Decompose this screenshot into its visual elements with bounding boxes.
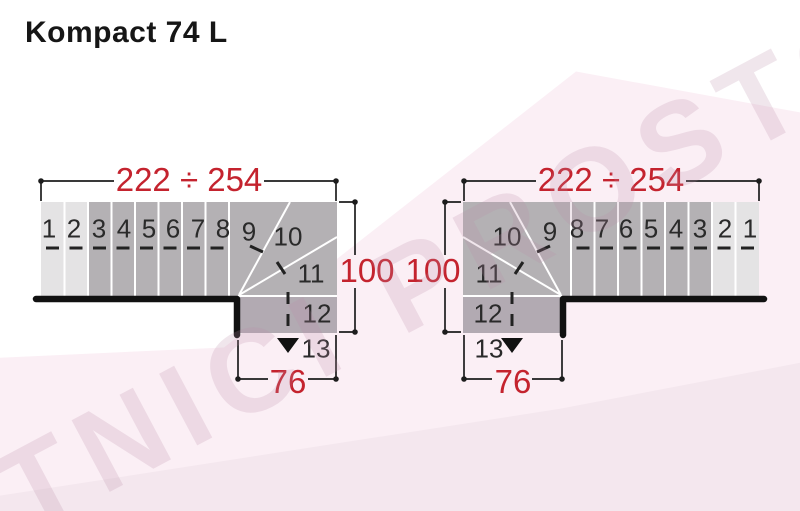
left-step-number: 13: [302, 334, 331, 365]
right-step-number: 9: [543, 217, 557, 248]
left-step-number: 7: [191, 214, 205, 245]
right-turn-dimension-label: 76: [495, 363, 532, 401]
left-step-number: 2: [67, 214, 81, 245]
right-step-number: 4: [669, 214, 683, 245]
right-step-number: 5: [644, 214, 658, 245]
left-step-number: 8: [216, 214, 230, 245]
page-title: Kompact 74 L: [25, 16, 228, 50]
right-step-number: 7: [595, 214, 609, 245]
right-height-dimension-label: 100: [405, 252, 460, 290]
left-step-number: 1: [42, 214, 56, 245]
right-step-number: 8: [570, 214, 584, 245]
left-step-number: 6: [166, 214, 180, 245]
left-step-number: 4: [117, 214, 131, 245]
left-step-number: 11: [298, 259, 325, 290]
right-step-number: 10: [493, 222, 522, 253]
left-height-dimension-label: 100: [339, 252, 394, 290]
right-step-number: 3: [693, 214, 707, 245]
left-turn-dimension-label: 76: [270, 363, 307, 401]
right-step-number: 11: [476, 259, 503, 290]
stair-scheme-page: Kompact 74 L 222 ÷ 254 100 76 1 2 3 4 5 …: [0, 0, 800, 511]
right-step-number: 12: [474, 299, 503, 330]
left-step-number: 10: [274, 222, 303, 253]
right-width-dimension-label: 222 ÷ 254: [538, 161, 685, 199]
left-step-number: 9: [242, 217, 256, 248]
right-step-number: 13: [475, 334, 504, 365]
stair-diagrams-graphic: [0, 0, 800, 511]
right-step-number: 2: [718, 214, 732, 245]
right-step-number: 1: [743, 214, 757, 245]
left-step-number: 5: [142, 214, 156, 245]
left-width-dimension-label: 222 ÷ 254: [116, 161, 263, 199]
left-step-number: 3: [92, 214, 106, 245]
right-step-number: 6: [619, 214, 633, 245]
left-step-number: 12: [303, 299, 332, 330]
